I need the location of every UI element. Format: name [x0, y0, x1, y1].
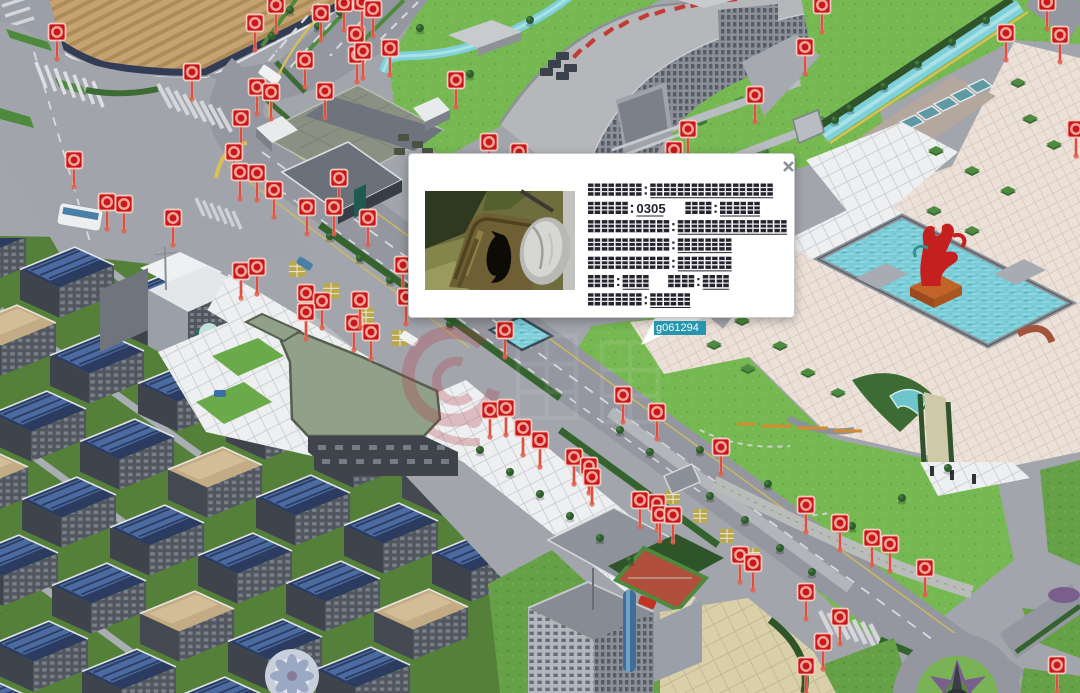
svg-text:0305: 0305	[636, 201, 665, 216]
